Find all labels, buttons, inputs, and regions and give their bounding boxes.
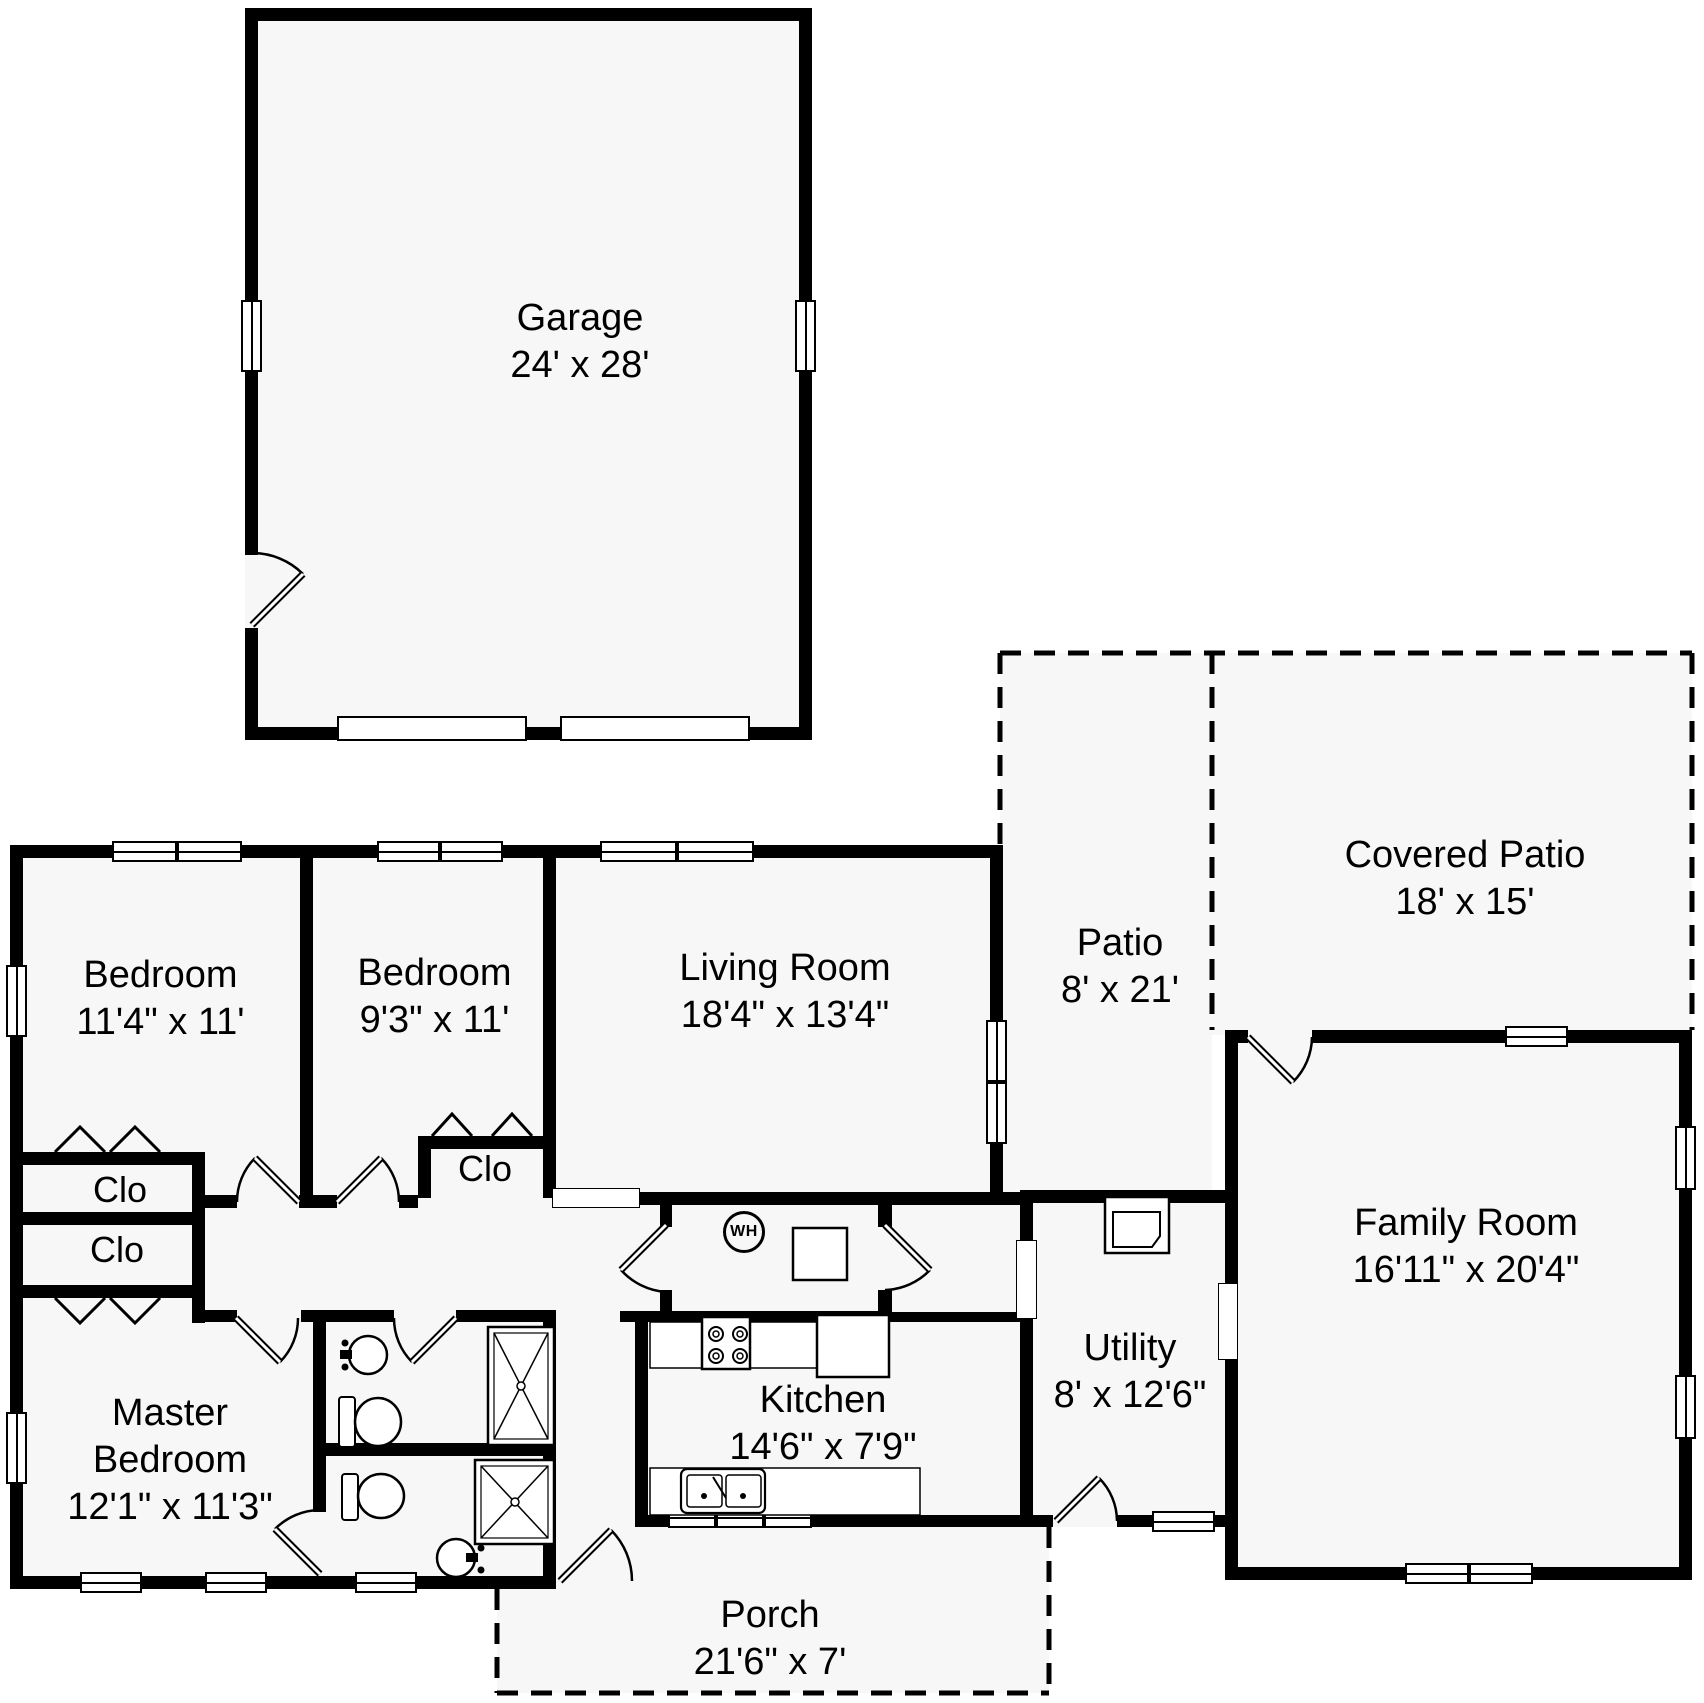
room-label-kitchen: Kitchen 14'6" x 7'9" <box>640 1377 1006 1471</box>
refrigerator-icon <box>817 1315 889 1377</box>
room-label-master-bedroom: Master Bedroom 12'1" x 11'3" <box>45 1390 295 1531</box>
closet-name: Clo <box>420 1147 550 1192</box>
room-name: Family Room <box>1276 1200 1656 1247</box>
dashed-boundaries <box>497 653 1692 1693</box>
room-name: Master Bedroom <box>45 1390 295 1484</box>
room-label-bedroom-1: Bedroom 11'4" x 11' <box>38 952 283 1046</box>
room-label-family-room: Family Room 16'11" x 20'4" <box>1276 1200 1656 1294</box>
room-dims: 9'3" x 11' <box>312 997 557 1044</box>
bifold-doors <box>55 1114 532 1323</box>
room-name: Porch <box>570 1592 970 1639</box>
room-dims: 8' x 21' <box>1010 967 1230 1014</box>
room-label-garage: Garage 24' x 28' <box>380 295 780 389</box>
kitchen-sink-icon <box>681 1469 765 1513</box>
washer-icon <box>1105 1197 1169 1253</box>
bathroom-fixtures <box>339 1327 554 1577</box>
water-heater-icon: WH <box>723 1211 765 1253</box>
room-dims: 16'11" x 20'4" <box>1276 1247 1656 1294</box>
toilet-icon <box>342 1474 404 1520</box>
closet-label: Clo <box>52 1228 182 1273</box>
room-label-living-room: Living Room 18'4" x 13'4" <box>600 945 970 1039</box>
room-dims: 18' x 15' <box>1270 879 1660 926</box>
room-name: Patio <box>1010 920 1230 967</box>
room-label-patio: Patio 8' x 21' <box>1010 920 1230 1014</box>
closet-name: Clo <box>52 1228 182 1273</box>
room-dims: 18'4" x 13'4" <box>600 992 970 1039</box>
room-name: Bedroom <box>38 952 283 999</box>
sink-icon <box>340 1336 387 1374</box>
shower-icon <box>475 1460 554 1544</box>
closet-name: Clo <box>55 1168 185 1213</box>
room-label-covered-patio: Covered Patio 18' x 15' <box>1270 832 1660 926</box>
room-label-utility: Utility 8' x 12'6" <box>1035 1325 1225 1419</box>
room-name: Garage <box>380 295 780 342</box>
shower-icon <box>488 1327 554 1445</box>
room-dims: 21'6" x 7' <box>570 1639 970 1686</box>
furnace-cabinet-icon <box>793 1228 847 1280</box>
room-name: Kitchen <box>640 1377 1006 1424</box>
water-heater-label: WH <box>730 1223 758 1241</box>
room-name: Living Room <box>600 945 970 992</box>
toilet-icon <box>339 1397 401 1447</box>
closet-label: Clo <box>420 1147 550 1192</box>
floor-plan: Garage 24' x 28' Bedroom 11'4" x 11' Bed… <box>0 0 1704 1703</box>
room-label-porch: Porch 21'6" x 7' <box>570 1592 970 1686</box>
room-name: Bedroom <box>312 950 557 997</box>
room-name: Utility <box>1035 1325 1225 1372</box>
room-name: Covered Patio <box>1270 832 1660 879</box>
room-dims: 11'4" x 11' <box>38 999 283 1046</box>
closet-label: Clo <box>55 1168 185 1213</box>
room-dims: 12'1" x 11'3" <box>45 1484 295 1531</box>
room-label-bedroom-2: Bedroom 9'3" x 11' <box>312 950 557 1044</box>
stove-icon <box>702 1317 750 1369</box>
room-dims: 14'6" x 7'9" <box>640 1424 1006 1471</box>
room-dims: 8' x 12'6" <box>1035 1372 1225 1419</box>
room-dims: 24' x 28' <box>380 342 780 389</box>
